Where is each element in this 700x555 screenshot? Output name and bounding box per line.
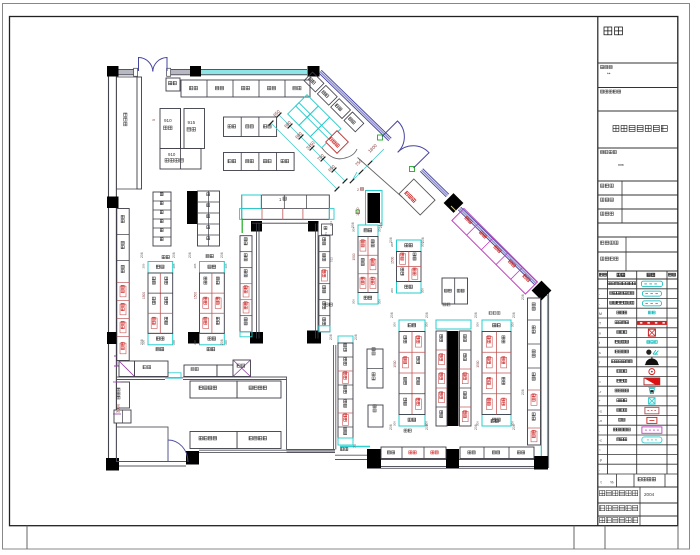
svg-text:2: 2 <box>325 232 327 236</box>
svg-text:206: 206 <box>351 222 355 228</box>
svg-text:t: t <box>599 341 600 345</box>
svg-text:206: 206 <box>390 288 394 293</box>
svg-text:206: 206 <box>224 263 228 268</box>
svg-text:206: 206 <box>354 334 358 340</box>
svg-text:206: 206 <box>476 322 480 327</box>
svg-text:206: 206 <box>378 299 382 304</box>
svg-text:1500: 1500 <box>476 360 480 367</box>
svg-text:2: 2 <box>357 188 359 192</box>
svg-text:206: 206 <box>193 340 197 345</box>
svg-text:%: % <box>610 480 614 485</box>
svg-text:206: 206 <box>352 299 356 304</box>
svg-text:206: 206 <box>140 252 144 258</box>
svg-text:206: 206 <box>425 322 429 327</box>
svg-text:1500: 1500 <box>352 253 356 260</box>
svg-text:206: 206 <box>511 322 515 327</box>
svg-text:910: 910 <box>168 152 176 157</box>
svg-text:-s: -s <box>599 409 602 413</box>
svg-text:1500: 1500 <box>142 292 146 299</box>
svg-text:206: 206 <box>521 294 525 300</box>
svg-text:206: 206 <box>421 288 425 293</box>
svg-text:206: 206 <box>193 263 197 268</box>
svg-text:-n: -n <box>599 419 602 423</box>
svg-text:206: 206 <box>393 421 397 426</box>
svg-text:915: 915 <box>188 120 196 125</box>
svg-text:206: 206 <box>224 340 228 345</box>
svg-text:206: 206 <box>389 237 393 243</box>
svg-text:-c: -c <box>599 439 602 443</box>
svg-text:206: 206 <box>425 424 429 430</box>
svg-text:206: 206 <box>421 237 425 243</box>
svg-text:206: 206 <box>379 222 383 228</box>
svg-text:1500: 1500 <box>194 292 198 299</box>
svg-text:1500: 1500 <box>391 257 395 264</box>
svg-text:206: 206 <box>220 339 224 345</box>
svg-text:206: 206 <box>329 334 333 340</box>
svg-text:151: 151 <box>329 221 333 226</box>
svg-text:206: 206 <box>474 312 478 318</box>
svg-text:5: 5 <box>152 119 156 121</box>
svg-text:n: n <box>599 331 601 335</box>
svg-text:1500: 1500 <box>393 360 397 367</box>
svg-text:=: = <box>599 380 601 384</box>
svg-text:206: 206 <box>389 424 393 430</box>
svg-text:206: 206 <box>425 312 429 318</box>
svg-text:206: 206 <box>220 252 224 258</box>
svg-text:206: 206 <box>140 339 144 345</box>
svg-text:910: 910 <box>164 118 172 123</box>
svg-text:206: 206 <box>142 263 146 268</box>
svg-text:***: *** <box>618 164 624 170</box>
svg-text:206: 206 <box>172 263 176 268</box>
svg-text:3000: 3000 <box>116 403 121 413</box>
svg-text:M: M <box>599 312 602 316</box>
svg-text:206: 206 <box>474 424 478 430</box>
svg-text:206: 206 <box>172 252 176 258</box>
svg-text:206: 206 <box>521 389 525 395</box>
svg-text:206: 206 <box>172 340 176 345</box>
svg-text:206: 206 <box>512 424 516 430</box>
svg-text:75: 75 <box>353 444 357 448</box>
svg-text:512: 512 <box>330 257 334 262</box>
svg-text:206: 206 <box>188 252 192 258</box>
svg-text:.p: .p <box>599 458 602 462</box>
svg-text:206: 206 <box>393 322 397 327</box>
svg-text:206: 206 <box>390 312 394 318</box>
svg-text:**: ** <box>607 72 611 77</box>
svg-text:2004: 2004 <box>644 492 655 497</box>
svg-text:206: 206 <box>512 312 516 318</box>
svg-text:s: s <box>599 351 601 355</box>
